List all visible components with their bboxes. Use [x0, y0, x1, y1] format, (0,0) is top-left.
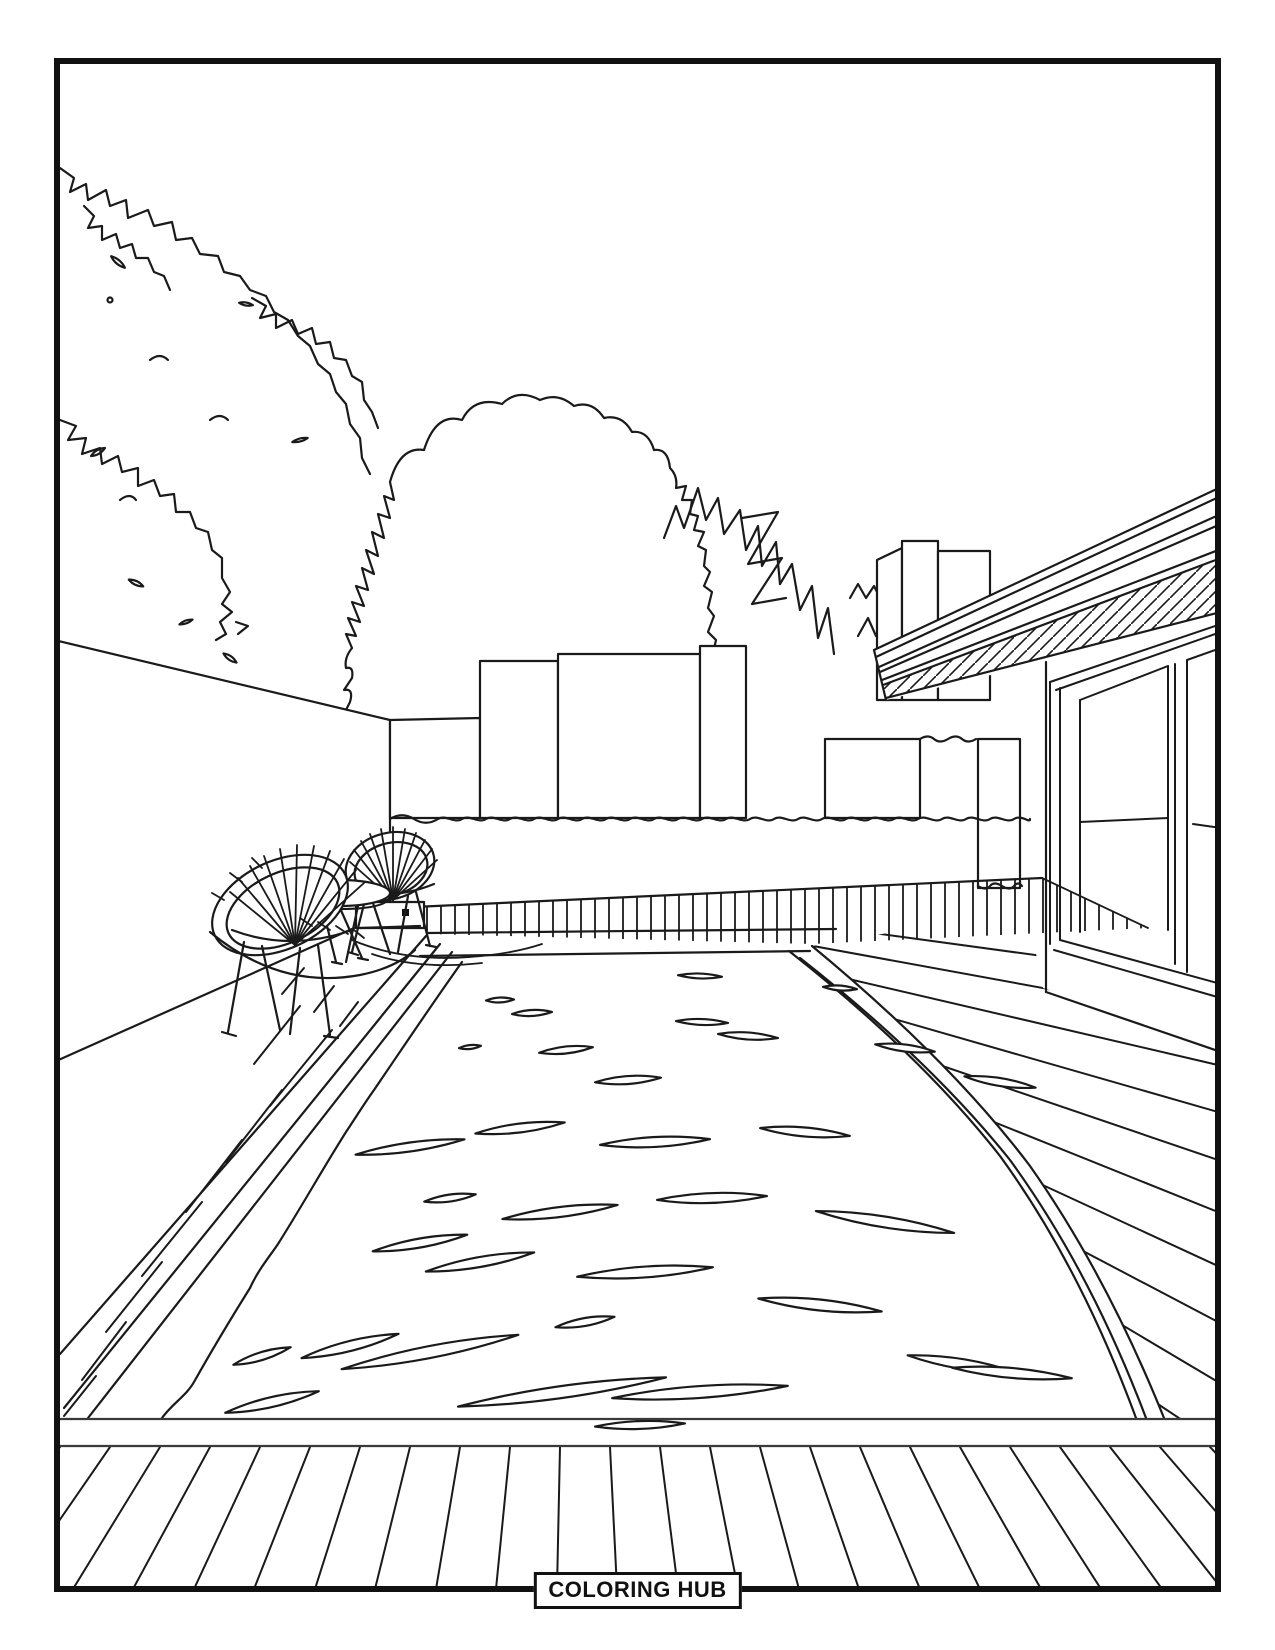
- pool-coping: [60, 929, 1164, 1418]
- coloring-page: COLORING HUB: [0, 0, 1275, 1650]
- right-deck: [720, 912, 1218, 1650]
- background-buildings: [480, 541, 1022, 889]
- waterline-right: [800, 958, 1146, 1418]
- far-deck: [392, 878, 1148, 944]
- bottom-deck: [0, 1447, 1275, 1589]
- jagged-trees: [664, 488, 910, 654]
- house-wall: [1046, 616, 1221, 1052]
- pool-ripples: [224, 973, 1072, 1431]
- coloring-hub-badge: COLORING HUB: [533, 1572, 741, 1609]
- foliage-left: [60, 168, 378, 664]
- pool-scene-illustration: [0, 0, 1275, 1650]
- ground-shadow-lines: [352, 940, 542, 965]
- pool: [60, 929, 1164, 1431]
- badge-label: COLORING HUB: [548, 1577, 726, 1602]
- planter-box: [356, 902, 424, 928]
